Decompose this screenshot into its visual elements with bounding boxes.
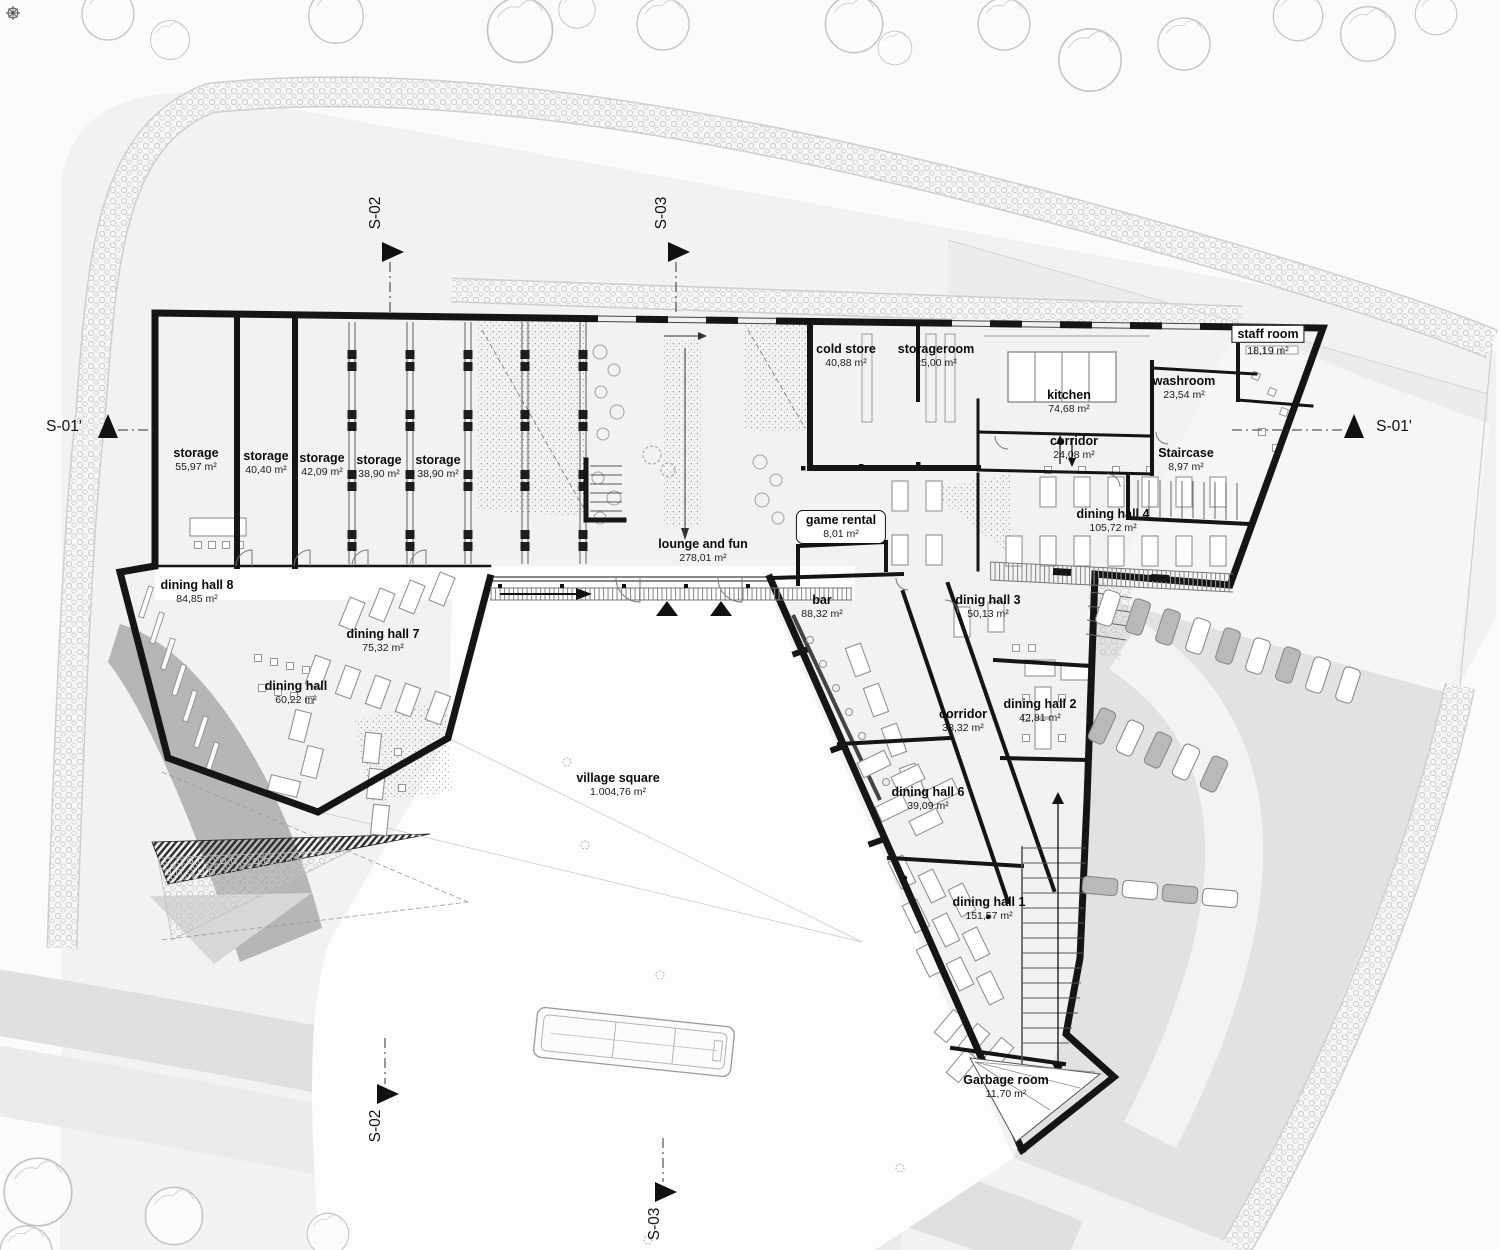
floor-plan-drawing	[0, 0, 1500, 1250]
room-label-dinig-hall-3: dinig hall 3 50,13 m²	[955, 592, 1020, 622]
room-area: 38,90 m²	[415, 468, 460, 482]
room-name: village square	[576, 770, 659, 786]
room-area: 60,22 m²	[265, 694, 328, 708]
room-name: corridor	[939, 706, 987, 722]
room-area: 38,90 m²	[356, 468, 401, 482]
room-name: kitchen	[1047, 387, 1091, 403]
room-label-game-rental: game rental 8,01 m²	[796, 510, 886, 544]
room-name: bar	[801, 592, 842, 608]
room-label-staff-room: staff room 18,19 m²	[1231, 324, 1304, 358]
section-label-s01-left: S-01'	[46, 418, 82, 436]
room-name: dining hall 8	[161, 577, 234, 593]
room-label-storage-2: storage 40,40 m²	[243, 448, 288, 478]
floor-plan-page: storage 55,97 m² storage 40,40 m² storag…	[0, 0, 1500, 1250]
room-area: 42,81 m²	[1004, 712, 1077, 726]
room-label-lounge-and-fun: lounge and fun 278,01 m²	[658, 536, 748, 566]
room-name: washroom	[1153, 373, 1216, 389]
north-symbol-icon	[6, 6, 20, 20]
room-label-dining-hall-6: dining hall 6 39,09 m²	[892, 784, 965, 814]
room-label-storage-1: storage 55,97 m²	[173, 445, 218, 475]
room-area: 40,40 m²	[243, 464, 288, 478]
room-area: 25,00 m²	[898, 357, 974, 371]
room-area: 39,09 m²	[892, 800, 965, 814]
room-area: 74,68 m²	[1047, 403, 1091, 417]
room-area: 105,72 m²	[1077, 522, 1150, 536]
room-name: storage	[173, 445, 218, 461]
room-label-dining-hall: dining hall 60,22 m²	[265, 678, 328, 708]
room-label-staircase: Staircase 8,97 m²	[1158, 445, 1214, 475]
room-label-storage-3: storage 42,09 m²	[299, 450, 344, 480]
room-label-storage-5: storage 38,90 m²	[415, 452, 460, 482]
room-label-storage-4: storage 38,90 m²	[356, 452, 401, 482]
room-area: 50,13 m²	[955, 608, 1020, 622]
section-label-s02-top: S-02	[367, 197, 385, 230]
room-name: staff room	[1231, 325, 1304, 343]
section-label-s02-bottom: S-02	[367, 1110, 385, 1143]
room-area: 11,70 m²	[963, 1088, 1048, 1102]
room-area: 8,97 m²	[1158, 461, 1214, 475]
room-label-village-square: village square 1.004,76 m²	[576, 770, 659, 800]
room-name: storage	[299, 450, 344, 466]
room-name: cold store	[816, 341, 876, 357]
room-area: 38,32 m²	[939, 722, 987, 736]
room-area: 1.004,76 m²	[576, 786, 659, 800]
room-name: dining hall 6	[892, 784, 965, 800]
room-area: 75,32 m²	[347, 642, 420, 656]
room-label-storageroom: storageroom 25,00 m²	[898, 341, 974, 371]
room-label-washroom: washroom 23,54 m²	[1153, 373, 1216, 403]
room-name: dinig hall 3	[955, 592, 1020, 608]
room-area: 42,09 m²	[299, 466, 344, 480]
room-label-dining-hall-7: dining hall 7 75,32 m²	[347, 626, 420, 656]
room-name: dining hall 4	[1077, 506, 1150, 522]
room-name: storage	[243, 448, 288, 464]
room-label-cold-store: cold store 40,88 m²	[816, 341, 876, 371]
room-label-kitchen: kitchen 74,68 m²	[1047, 387, 1091, 417]
room-area: 84,85 m²	[161, 593, 234, 607]
room-name: dining hall	[265, 678, 328, 694]
room-name: storageroom	[898, 341, 974, 357]
room-name: corridor	[1050, 433, 1098, 449]
room-area: 40,88 m²	[816, 357, 876, 371]
room-area: 278,01 m²	[658, 552, 748, 566]
room-label-corridor-wing: corridor 38,32 m²	[939, 706, 987, 736]
room-area: 18,19 m²	[1231, 345, 1304, 359]
room-name: dining hall 7	[347, 626, 420, 642]
room-area: 8,01 m²	[806, 528, 876, 542]
room-name: game rental	[806, 512, 876, 528]
room-label-dining-hall-4: dining hall 4 105,72 m²	[1077, 506, 1150, 536]
room-label-dining-hall-8: dining hall 8 84,85 m²	[161, 577, 234, 607]
room-name: storage	[415, 452, 460, 468]
section-label-s01-right: S-01'	[1376, 418, 1412, 436]
room-area: 151,57 m²	[953, 910, 1026, 924]
room-area: 24,08 m²	[1050, 449, 1098, 463]
room-area: 88,32 m²	[801, 608, 842, 622]
room-label-bar: bar 88,32 m²	[801, 592, 842, 622]
section-label-s03-top: S-03	[653, 197, 671, 230]
room-name: dining hall 1	[953, 894, 1026, 910]
room-area: 23,54 m²	[1153, 389, 1216, 403]
room-name: dining hall 2	[1004, 696, 1077, 712]
room-name: lounge and fun	[658, 536, 748, 552]
room-name: Garbage room	[963, 1072, 1048, 1088]
room-label-dining-hall-2: dining hall 2 42,81 m²	[1004, 696, 1077, 726]
room-name: storage	[356, 452, 401, 468]
room-area: 55,97 m²	[173, 461, 218, 475]
section-label-s03-bottom: S-03	[646, 1208, 664, 1241]
room-label-corridor-kitchen: corridor 24,08 m²	[1050, 433, 1098, 463]
room-label-dining-hall-1: dining hall 1 151,57 m²	[953, 894, 1026, 924]
room-name: Staircase	[1158, 445, 1214, 461]
room-label-garbage-room: Garbage room 11,70 m²	[963, 1072, 1048, 1102]
